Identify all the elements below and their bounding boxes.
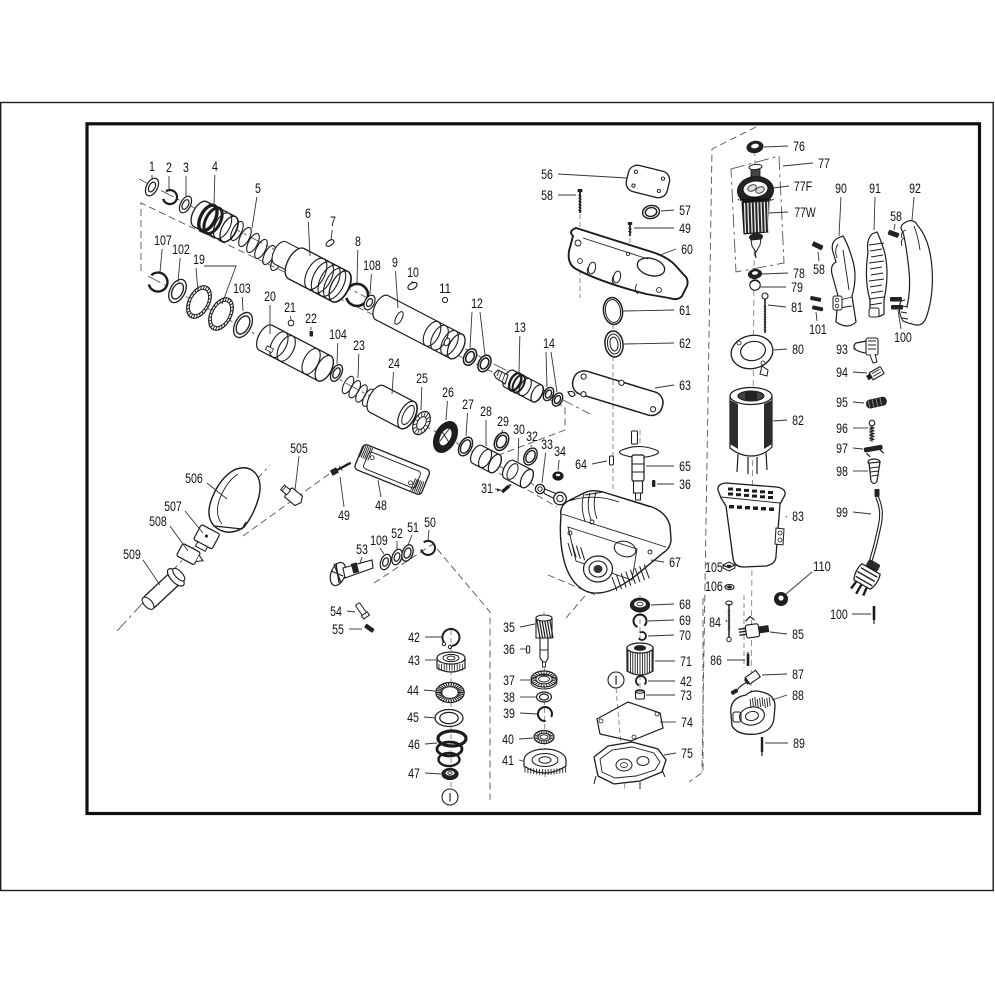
svg-text:2: 2	[166, 160, 172, 175]
svg-text:100: 100	[830, 607, 848, 622]
svg-text:85: 85	[792, 627, 804, 642]
svg-text:58: 58	[541, 188, 553, 203]
svg-text:7: 7	[330, 214, 336, 229]
svg-text:1: 1	[149, 159, 155, 174]
svg-text:92: 92	[909, 181, 921, 196]
svg-text:506: 506	[185, 471, 203, 486]
svg-text:508: 508	[149, 514, 167, 529]
svg-text:505: 505	[290, 441, 308, 456]
svg-text:95: 95	[836, 395, 848, 410]
svg-text:49: 49	[338, 508, 350, 523]
svg-text:69: 69	[679, 613, 691, 628]
svg-text:24: 24	[388, 356, 400, 371]
svg-text:22: 22	[305, 311, 317, 326]
svg-text:103: 103	[233, 281, 251, 296]
svg-text:45: 45	[407, 710, 419, 725]
svg-text:56: 56	[541, 167, 553, 182]
svg-text:507: 507	[164, 499, 182, 514]
svg-text:19: 19	[193, 252, 205, 267]
svg-text:38: 38	[503, 690, 515, 705]
svg-text:96: 96	[836, 421, 848, 436]
svg-text:47: 47	[408, 766, 420, 781]
svg-text:4: 4	[212, 159, 218, 174]
svg-text:509: 509	[123, 547, 141, 562]
svg-text:83: 83	[792, 509, 804, 524]
svg-text:70: 70	[679, 628, 691, 643]
svg-text:79: 79	[791, 280, 803, 295]
svg-text:75: 75	[681, 746, 693, 761]
svg-text:98: 98	[836, 464, 848, 479]
svg-text:31: 31	[481, 481, 493, 496]
svg-text:11: 11	[439, 281, 451, 296]
svg-text:36: 36	[679, 477, 691, 492]
svg-text:80: 80	[792, 342, 804, 357]
svg-text:86: 86	[710, 653, 722, 668]
svg-text:68: 68	[679, 597, 691, 612]
svg-text:57: 57	[679, 203, 691, 218]
svg-text:35: 35	[503, 620, 515, 635]
svg-text:110: 110	[813, 559, 831, 574]
svg-text:46: 46	[408, 737, 420, 752]
svg-text:106: 106	[705, 579, 723, 594]
svg-text:12: 12	[471, 296, 483, 311]
svg-text:42: 42	[408, 630, 420, 645]
svg-text:21: 21	[284, 300, 296, 315]
svg-text:93: 93	[836, 342, 848, 357]
svg-text:44: 44	[407, 683, 419, 698]
svg-text:33: 33	[541, 437, 553, 452]
svg-text:I: I	[614, 674, 617, 688]
svg-text:77F: 77F	[794, 179, 812, 194]
svg-text:I: I	[448, 791, 451, 805]
svg-text:76: 76	[793, 139, 805, 154]
svg-text:89: 89	[793, 736, 805, 751]
svg-text:101: 101	[809, 322, 827, 337]
svg-text:87: 87	[792, 667, 804, 682]
svg-text:51: 51	[407, 520, 419, 535]
svg-text:84: 84	[709, 615, 721, 630]
svg-text:54: 54	[330, 604, 342, 619]
svg-text:100: 100	[894, 330, 912, 345]
svg-text:77: 77	[818, 156, 830, 171]
svg-text:30: 30	[513, 422, 525, 437]
svg-text:49: 49	[679, 221, 691, 236]
svg-text:102: 102	[172, 242, 190, 257]
svg-text:91: 91	[869, 181, 881, 196]
svg-text:13: 13	[514, 320, 526, 335]
svg-text:67: 67	[669, 555, 681, 570]
svg-text:5: 5	[255, 181, 261, 196]
svg-text:37: 37	[503, 673, 515, 688]
svg-text:6: 6	[305, 206, 311, 221]
svg-text:43: 43	[408, 653, 420, 668]
svg-text:109: 109	[370, 533, 388, 548]
svg-text:23: 23	[353, 338, 365, 353]
svg-text:28: 28	[480, 404, 492, 419]
svg-text:61: 61	[679, 303, 691, 318]
svg-text:55: 55	[332, 622, 344, 637]
svg-text:60: 60	[681, 242, 693, 257]
svg-text:26: 26	[442, 385, 454, 400]
svg-text:108: 108	[363, 258, 381, 273]
svg-text:39: 39	[503, 706, 515, 721]
svg-text:105: 105	[705, 560, 723, 575]
svg-text:62: 62	[679, 336, 691, 351]
svg-text:41: 41	[502, 753, 514, 768]
svg-text:65: 65	[679, 459, 691, 474]
svg-text:34: 34	[554, 444, 566, 459]
svg-text:32: 32	[526, 429, 538, 444]
svg-text:58: 58	[813, 262, 825, 277]
svg-text:81: 81	[791, 300, 803, 315]
svg-text:64: 64	[575, 457, 587, 472]
svg-text:36: 36	[503, 642, 515, 657]
svg-text:42: 42	[680, 674, 692, 689]
svg-text:74: 74	[681, 715, 693, 730]
svg-text:9: 9	[392, 255, 398, 270]
svg-text:63: 63	[679, 378, 691, 393]
svg-text:77W: 77W	[794, 205, 815, 220]
svg-text:94: 94	[836, 365, 848, 380]
svg-text:107: 107	[154, 233, 172, 248]
svg-text:20: 20	[264, 289, 276, 304]
svg-text:8: 8	[355, 234, 361, 249]
svg-text:14: 14	[543, 336, 555, 351]
svg-text:52: 52	[391, 526, 403, 541]
svg-text:29: 29	[497, 414, 509, 429]
svg-text:25: 25	[416, 371, 428, 386]
svg-text:88: 88	[792, 688, 804, 703]
svg-text:90: 90	[835, 181, 847, 196]
svg-text:82: 82	[792, 413, 804, 428]
svg-text:40: 40	[502, 732, 514, 747]
svg-text:97: 97	[836, 441, 848, 456]
svg-text:3: 3	[183, 160, 189, 175]
svg-text:78: 78	[793, 266, 805, 281]
svg-text:27: 27	[462, 397, 474, 412]
svg-text:71: 71	[680, 654, 692, 669]
svg-text:50: 50	[424, 515, 436, 530]
svg-text:99: 99	[836, 505, 848, 520]
svg-text:10: 10	[407, 265, 419, 280]
svg-text:58: 58	[890, 209, 902, 224]
svg-text:53: 53	[356, 542, 368, 557]
svg-text:73: 73	[680, 688, 692, 703]
svg-text:48: 48	[375, 498, 387, 513]
svg-text:104: 104	[329, 327, 347, 342]
